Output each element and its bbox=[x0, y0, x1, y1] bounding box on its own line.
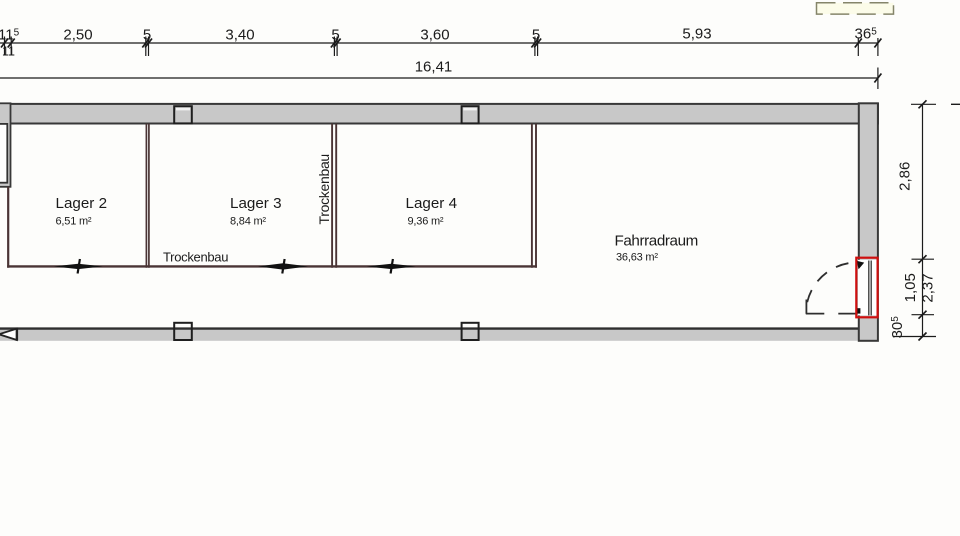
svg-text:6,51 m²: 6,51 m² bbox=[56, 216, 92, 228]
svg-text:9,36 m²: 9,36 m² bbox=[408, 216, 444, 228]
svg-text:5: 5 bbox=[331, 27, 339, 44]
svg-text:2,37: 2,37 bbox=[920, 273, 937, 302]
svg-text:Lager 2: Lager 2 bbox=[56, 195, 108, 212]
svg-text:Lager 3: Lager 3 bbox=[230, 195, 282, 212]
svg-text:8,84 m²: 8,84 m² bbox=[230, 216, 266, 228]
svg-text:5: 5 bbox=[532, 27, 540, 44]
svg-text:Lager 4: Lager 4 bbox=[406, 195, 458, 212]
svg-text:5,93: 5,93 bbox=[682, 26, 711, 43]
svg-text:Fahrradraum: Fahrradraum bbox=[615, 233, 698, 250]
svg-text:3,40: 3,40 bbox=[225, 27, 254, 44]
svg-text:5: 5 bbox=[143, 27, 151, 44]
svg-text:2,86: 2,86 bbox=[897, 162, 914, 191]
svg-text:Trockenbau: Trockenbau bbox=[316, 154, 332, 224]
svg-text:3,60: 3,60 bbox=[420, 27, 449, 44]
svg-text:36,63 m²: 36,63 m² bbox=[616, 252, 658, 264]
svg-text:2,50: 2,50 bbox=[63, 27, 92, 44]
svg-text:11: 11 bbox=[2, 45, 15, 59]
svg-text:1,05: 1,05 bbox=[902, 273, 919, 302]
svg-text:16,41: 16,41 bbox=[415, 59, 453, 76]
svg-text:Trockenbau: Trockenbau bbox=[163, 250, 228, 265]
